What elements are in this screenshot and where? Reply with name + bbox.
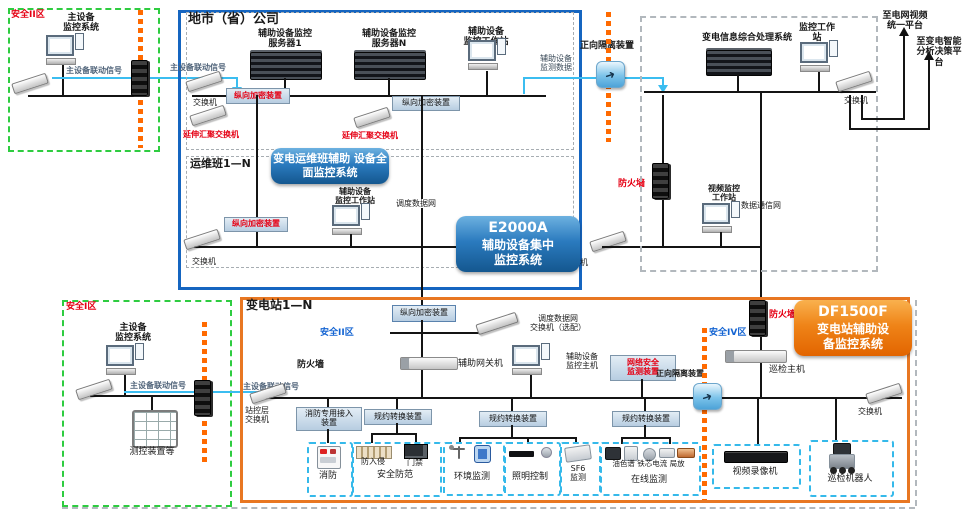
connector-line <box>62 65 64 96</box>
pc-icon <box>800 42 838 72</box>
connector-line <box>151 396 153 410</box>
online-monitor-icon <box>659 448 675 458</box>
info-system-label: 变电信息综合处理系统 <box>692 33 802 43</box>
meter-icon <box>132 410 178 448</box>
e2000a-line3: 监控系统 <box>456 253 580 268</box>
connector-line <box>390 332 480 334</box>
data-flow-line <box>523 78 525 94</box>
fire-indicator-icon <box>320 457 336 463</box>
aux-data-label: 辅助设备 监测数据 <box>534 54 578 72</box>
forward-isolation-icon <box>596 61 625 88</box>
fire-access-device: 消防专用接入 装置 <box>296 407 362 431</box>
aux-host-label: 辅助设备 监控主机 <box>558 352 606 370</box>
firewall-icon <box>194 380 211 416</box>
agg-switch1-label: 延伸汇聚交换机 <box>183 130 239 139</box>
connector-line <box>486 71 488 95</box>
outer-dashed-line <box>915 300 917 506</box>
connector-line <box>818 72 820 92</box>
fire-label: 消防 <box>313 471 343 481</box>
e2000a-badge: E2000A 辅助设备集中 监控系统 <box>456 216 580 272</box>
encrypt-device-ops: 纵向加密装置 <box>224 217 288 232</box>
security-label: 安全防范 <box>369 470 421 480</box>
tower-icon <box>135 343 144 360</box>
keyboard-icon <box>332 228 362 235</box>
robot-wheel-icon <box>839 467 846 474</box>
tower-icon <box>497 38 506 55</box>
connector-line <box>327 397 329 407</box>
online-monitor-icon <box>677 448 695 458</box>
encrypt-device-1: 纵向加密装置 <box>226 88 290 104</box>
firewall-icon <box>652 163 669 199</box>
df1500f-line3: 备监控系统 <box>794 337 912 352</box>
firewall-icon <box>749 300 766 336</box>
connector-line <box>757 397 759 444</box>
connector-line <box>835 397 837 440</box>
connector-line <box>903 34 905 120</box>
light-label: 照明控制 <box>508 472 552 482</box>
df1500f-badge: DF1500F 变电站辅助设 备监控系统 <box>794 300 912 356</box>
tower-icon <box>541 343 550 360</box>
fire-indicator-icon <box>330 449 336 454</box>
agg-switch2-label: 延伸汇聚交换机 <box>342 131 398 140</box>
monitor-icon <box>468 40 496 61</box>
connector-line <box>861 95 863 120</box>
connector-line <box>641 379 643 398</box>
signal-label: 主设备联动信号 <box>66 66 122 75</box>
connector-line <box>530 375 532 398</box>
env-label: 环境监测 <box>450 472 494 482</box>
proto-device-1: 规约转换装置 <box>364 409 432 425</box>
monitor-icon <box>512 345 540 366</box>
forward-isolation-label: 正向隔离装置 <box>656 369 704 378</box>
dispatch-net-label: 调度数据网 <box>396 199 436 208</box>
switch-icon <box>589 231 627 253</box>
proto-device-2: 规约转换装置 <box>479 411 547 427</box>
station-title: 变电站1—N <box>246 299 312 313</box>
connector-line <box>388 78 390 95</box>
light-sensor-icon <box>541 447 552 458</box>
robot-wheel-icon <box>848 467 855 474</box>
main-equip-system-label: 主设备 监控系统 <box>46 13 116 34</box>
dispatch-switch-label: 调度数据网 交换机（选配） <box>518 314 598 332</box>
server-icon <box>250 52 322 80</box>
pc-icon <box>468 40 506 70</box>
proto-device-3: 规约转换装置 <box>612 411 680 427</box>
connector-line <box>861 118 905 120</box>
connector-line <box>90 395 196 397</box>
patrol-host-icon <box>725 350 787 363</box>
light-controller-icon <box>509 451 534 457</box>
switch-label: 交换机 <box>844 96 868 105</box>
connector-line <box>327 429 329 443</box>
keyboard-icon <box>468 63 498 70</box>
to-video-platform-label: 至电网视频 统一平台 <box>876 11 934 32</box>
meter-label: 测控装置等 <box>124 447 180 457</box>
zone-tl-label: 安全II区 <box>11 10 45 20</box>
server1-label: 辅助设备监控 服务器1 <box>238 29 332 50</box>
connector-line <box>511 397 513 411</box>
serverN-label: 辅助设备监控 服务器N <box>342 29 436 50</box>
weather-vane-icon <box>449 445 454 450</box>
connector-line <box>737 74 739 92</box>
main-equip-system-label: 主设备 监控系统 <box>98 323 168 344</box>
intrusion-label: 防入侵 <box>356 457 390 466</box>
ops-title: 运维班1—N <box>190 158 251 171</box>
keyboard-icon <box>106 368 136 375</box>
firewall-icon <box>131 60 148 96</box>
signal-label: 主设备联动信号 <box>130 381 186 390</box>
connector-line <box>371 433 417 435</box>
online-items-label: 油色谱 铁芯电流 局放 <box>601 460 696 469</box>
pc-icon <box>512 345 550 375</box>
connector-line <box>644 397 646 411</box>
zone4-label: 安全IV区 <box>709 328 746 338</box>
security-boundary <box>702 328 707 500</box>
outer-dashed-line <box>62 507 915 509</box>
pc-icon <box>46 35 84 65</box>
connector-line <box>396 397 398 409</box>
vcr-icon <box>724 451 788 463</box>
tower-icon <box>829 40 838 57</box>
door-label: 门禁 <box>402 458 428 467</box>
to-ai-platform-label: 至变电智能 分析决策平 台 <box>910 37 968 68</box>
fire-indicator-icon <box>320 449 327 454</box>
keyboard-icon <box>46 58 76 65</box>
zone-bl-label: 安全I区 <box>66 302 96 312</box>
firewall-label: 防火墙 <box>297 360 324 370</box>
connector-line <box>459 437 577 439</box>
vcr-label: 视频录像机 <box>726 467 784 477</box>
ops-system-badge: 变电运维班辅助 设备全面监控系统 <box>271 148 389 184</box>
city-title: 地市（省）公司 <box>188 13 279 28</box>
keyboard-icon <box>800 65 830 72</box>
station-switch-label: 站控层 交换机 <box>239 406 275 424</box>
firewall-video-label: 防火墙 <box>769 310 796 320</box>
gateway-label: 辅助网关机 <box>458 359 503 369</box>
e2000a-line1: E2000A <box>456 220 580 238</box>
robot-wheel-icon <box>830 467 837 474</box>
monitor-icon <box>332 205 360 226</box>
robot-label: 巡检机器人 <box>818 474 882 484</box>
switch-label: 交换机 <box>192 257 216 266</box>
monitor-icon <box>106 345 134 366</box>
monitor-icon <box>46 35 74 56</box>
bus-line <box>256 397 902 399</box>
df1500f-line1: DF1500F <box>794 304 912 322</box>
connector-line <box>28 95 136 97</box>
ops-workstation-label: 辅助设备 监控工作站 <box>326 187 384 205</box>
connector-line <box>849 128 930 130</box>
weather-vane-icon <box>452 448 465 450</box>
diagram-canvas: 安全II区 主设备 监控系统 主设备联动信号 地市（省）公司 辅助设备监控 服务… <box>0 0 968 525</box>
switch-label: 交换机 <box>193 98 217 107</box>
server-icon <box>354 52 426 80</box>
online-label: 在线监测 <box>624 475 674 485</box>
env-sensor-icon <box>474 445 491 463</box>
encrypt-device-station: 纵向加密装置 <box>392 305 456 322</box>
encrypt-device-2: 纵向加密装置 <box>392 96 460 111</box>
forward-isolation-icon <box>693 383 722 410</box>
connector-line <box>849 95 851 130</box>
df1500f-line2: 变电站辅助设 <box>794 322 912 337</box>
keyboard-icon <box>512 368 542 375</box>
tower-icon <box>75 33 84 50</box>
pc-icon <box>106 345 144 375</box>
connector-line <box>928 58 930 130</box>
door-access-icon <box>404 444 428 459</box>
tower-icon <box>361 203 370 220</box>
zone2-label: 安全II区 <box>320 328 354 338</box>
connector-line <box>621 437 671 439</box>
pc-icon <box>332 205 370 235</box>
server-icon <box>706 50 772 76</box>
e2000a-line2: 辅助设备集中 <box>456 238 580 253</box>
switch-label: 交换机 <box>858 407 882 416</box>
patrol-host-label: 巡检主机 <box>769 365 805 375</box>
gateway-icon <box>400 357 458 370</box>
sf6-label: SF6 监测 <box>563 464 593 482</box>
monitor-icon <box>800 42 828 63</box>
